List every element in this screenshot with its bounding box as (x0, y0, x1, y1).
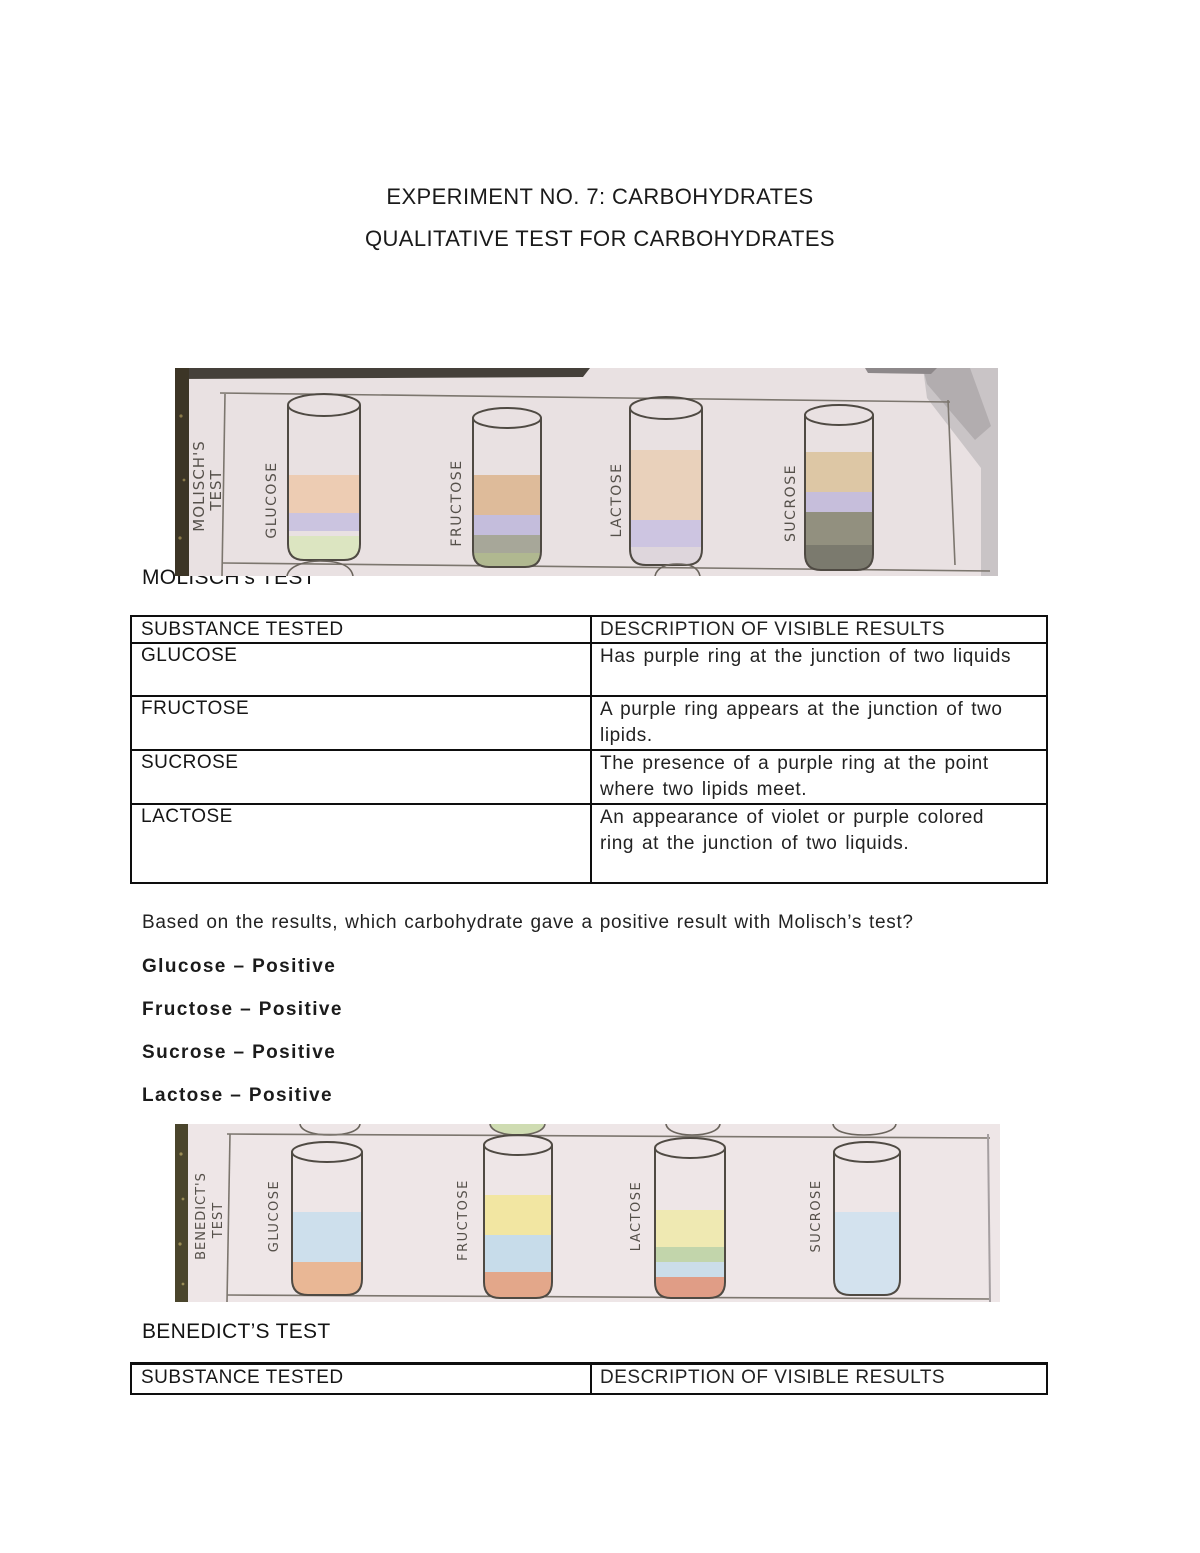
description-cell: A purple ring appears at the junction of… (591, 696, 1047, 750)
answer-glucose: Glucose – Positive (142, 956, 336, 978)
liquid-layer (805, 452, 873, 492)
liquid-layer (805, 545, 873, 570)
liquid-layer (834, 1212, 900, 1295)
molisch-panel-label-line2: TEST (207, 469, 225, 511)
answer-lactose: Lactose – Positive (142, 1085, 333, 1107)
liquid-layer (473, 515, 541, 535)
liquid-layer (655, 1277, 725, 1298)
liquid-layer (805, 512, 873, 545)
liquid-layer (484, 1235, 552, 1272)
liquid-layer (473, 553, 541, 567)
molisch-photo-drawing: MOLISCH'S TEST GLUCOSE FRUCTOSE (175, 368, 998, 576)
answer-sucrose: Sucrose – Positive (142, 1042, 336, 1064)
liquid-layer (655, 1210, 725, 1247)
description-cell: Has purple ring at the junction of two l… (591, 643, 1047, 696)
column-header-description: DESCRIPTION OF VISIBLE RESULTS (591, 616, 1047, 643)
molisch-results-table: SUBSTANCE TESTED DESCRIPTION OF VISIBLE … (130, 615, 1048, 884)
liquid-layer (288, 475, 360, 513)
liquid-layer (473, 475, 541, 515)
molisch-test-photo: MOLISCH'S TEST GLUCOSE FRUCTOSE (175, 368, 998, 576)
liquid-layer (655, 1262, 725, 1277)
description-cell: The presence of a purple ring at the poi… (591, 750, 1047, 804)
benedict-panel-label-line1: BENEDICT'S (194, 1172, 209, 1260)
tube-label-sucrose: SUCROSE (809, 1179, 824, 1252)
liquid-layer (655, 1247, 725, 1262)
document-page: EXPERIMENT NO. 7: CARBOHYDRATES QUALITAT… (0, 0, 1200, 1553)
table-row: GLUCOSE Has purple ring at the junction … (131, 643, 1047, 696)
table-header-row: SUBSTANCE TESTED DESCRIPTION OF VISIBLE … (131, 616, 1047, 643)
column-header-description: DESCRIPTION OF VISIBLE RESULTS (591, 1364, 1047, 1394)
table-row: SUCROSE The presence of a purple ring at… (131, 750, 1047, 804)
liquid-layer (473, 535, 541, 553)
liquid-layer (630, 520, 702, 547)
notebook-binding-strip (175, 1124, 188, 1302)
column-header-substance: SUBSTANCE TESTED (131, 616, 591, 643)
answer-fructose: Fructose – Positive (142, 999, 343, 1021)
tube-label-lactose: LACTOSE (629, 1181, 644, 1251)
benedict-panel-label-line2: TEST (211, 1202, 226, 1239)
benedict-results-table: SUBSTANCE TESTED DESCRIPTION OF VISIBLE … (130, 1362, 1048, 1395)
table-header-row: SUBSTANCE TESTED DESCRIPTION OF VISIBLE … (131, 1364, 1047, 1394)
substance-cell: GLUCOSE (131, 643, 591, 696)
substance-cell: FRUCTOSE (131, 696, 591, 750)
liquid-layer (630, 547, 702, 565)
liquid-layer (484, 1195, 552, 1235)
liquid-layer (805, 492, 873, 512)
benedict-test-heading: BENEDICT’S TEST (142, 1320, 330, 1344)
liquid-layer (484, 1272, 552, 1298)
notebook-binding-strip (175, 368, 189, 576)
document-title-line-1: EXPERIMENT NO. 7: CARBOHYDRATES (0, 184, 1200, 210)
tube-label-lactose: LACTOSE (609, 462, 625, 537)
tube-label-glucose: GLUCOSE (264, 461, 280, 538)
substance-cell: SUCROSE (131, 750, 591, 804)
liquid-layer (288, 536, 360, 560)
tube-label-fructose: FRUCTOSE (449, 459, 465, 546)
tube-label-fructose: FRUCTOSE (456, 1179, 471, 1261)
table-row: LACTOSE An appearance of violet or purpl… (131, 804, 1047, 883)
benedict-photo-drawing: BENEDICT'S TEST GLUCOSE FRUCTOSE (175, 1124, 1000, 1302)
photo-edge-shadow-small (865, 368, 937, 374)
substance-cell: LACTOSE (131, 804, 591, 883)
liquid-layer (292, 1262, 362, 1295)
tube-label-sucrose: SUCROSE (783, 464, 799, 542)
liquid-layer (288, 513, 360, 531)
description-cell: An appearance of violet or purple colore… (591, 804, 1047, 883)
molisch-panel-label-line1: MOLISCH'S (190, 440, 208, 531)
table-row: FRUCTOSE A purple ring appears at the ju… (131, 696, 1047, 750)
molisch-question: Based on the results, which carbohydrate… (142, 912, 1102, 934)
benedict-test-photo: BENEDICT'S TEST GLUCOSE FRUCTOSE (175, 1124, 1000, 1302)
document-title-line-2: QUALITATIVE TEST FOR CARBOHYDRATES (0, 226, 1200, 252)
liquid-layer (630, 450, 702, 520)
liquid-layer (292, 1212, 362, 1262)
column-header-substance: SUBSTANCE TESTED (131, 1364, 591, 1394)
tube-label-glucose: GLUCOSE (267, 1180, 282, 1252)
